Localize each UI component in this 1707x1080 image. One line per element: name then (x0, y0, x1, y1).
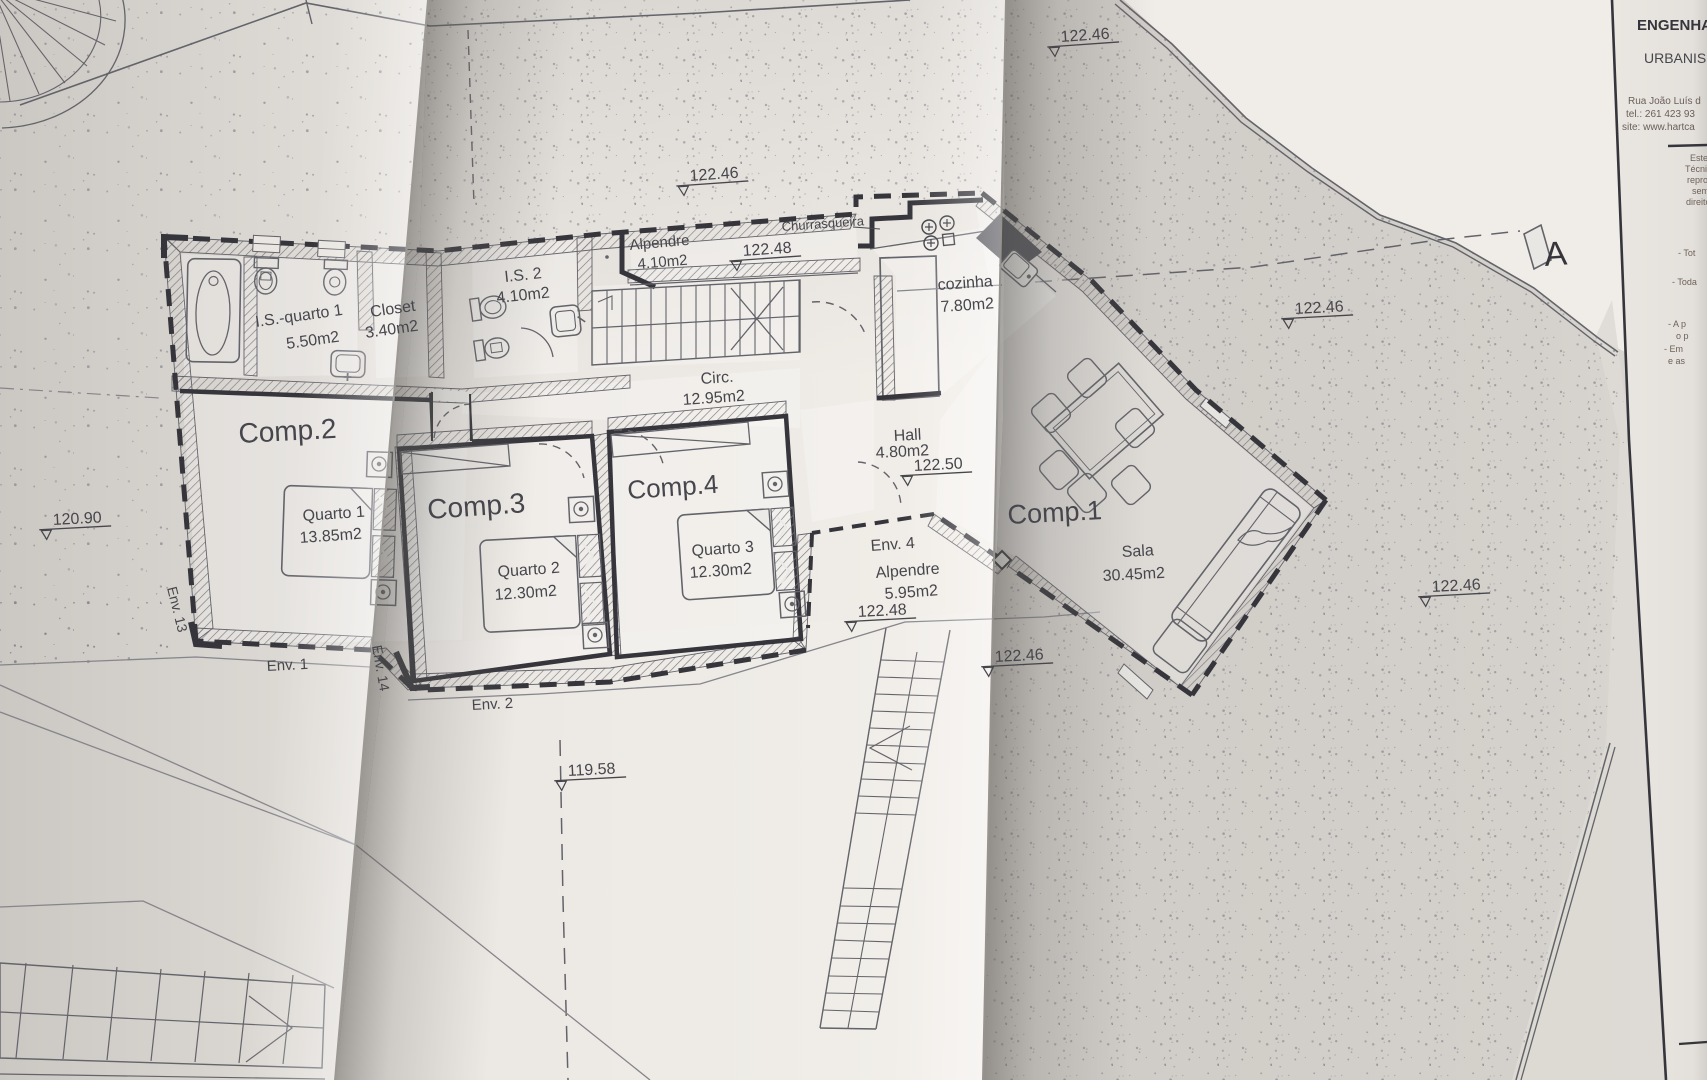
svg-text:122.48: 122.48 (857, 601, 907, 621)
svg-text:Env. 2: Env. 2 (471, 695, 513, 714)
svg-text:Sala: Sala (1121, 542, 1154, 561)
svg-text:sem: sem (1692, 186, 1707, 196)
svg-text:tel.: 261 423 93: tel.: 261 423 93 (1626, 109, 1695, 120)
svg-text:- Toda: - Toda (1672, 277, 1697, 287)
svg-text:Env. 4: Env. 4 (870, 535, 915, 555)
svg-text:Circ.: Circ. (700, 369, 734, 388)
svg-text:Comp.1: Comp.1 (1007, 495, 1103, 530)
svg-text:- Tot: - Tot (1678, 248, 1696, 258)
svg-text:Comp.4: Comp.4 (626, 469, 719, 505)
svg-text:120.90: 120.90 (52, 509, 102, 529)
svg-text:Este d: Este d (1690, 153, 1707, 163)
svg-text:site: www.hartca: site: www.hartca (1622, 122, 1695, 133)
svg-text:reprod: reprod (1687, 175, 1707, 185)
svg-text:direito: direito (1686, 197, 1707, 207)
svg-text:e as: e as (1668, 356, 1686, 366)
svg-text:A: A (1543, 234, 1569, 274)
svg-text:122.46: 122.46 (1294, 298, 1344, 318)
svg-text:122.50: 122.50 (913, 455, 963, 475)
svg-text:- Em: - Em (1664, 344, 1683, 354)
svg-text:ENGENHA: ENGENHA (1637, 17, 1707, 34)
svg-text:Env. 1: Env. 1 (266, 656, 308, 675)
svg-text:o p: o p (1676, 331, 1689, 341)
svg-text:Técnico: Técnico (1685, 164, 1707, 174)
svg-text:122.46: 122.46 (994, 646, 1044, 666)
svg-text:119.58: 119.58 (567, 761, 616, 780)
svg-text:URBANIS: URBANIS (1644, 50, 1706, 66)
svg-text:Rua João Luís d: Rua João Luís d (1628, 96, 1701, 107)
svg-text:30.45m2: 30.45m2 (1102, 565, 1165, 585)
svg-text:Comp.2: Comp.2 (238, 413, 338, 449)
svg-text:- A p: - A p (1668, 319, 1686, 329)
svg-text:122.46: 122.46 (1431, 576, 1481, 596)
